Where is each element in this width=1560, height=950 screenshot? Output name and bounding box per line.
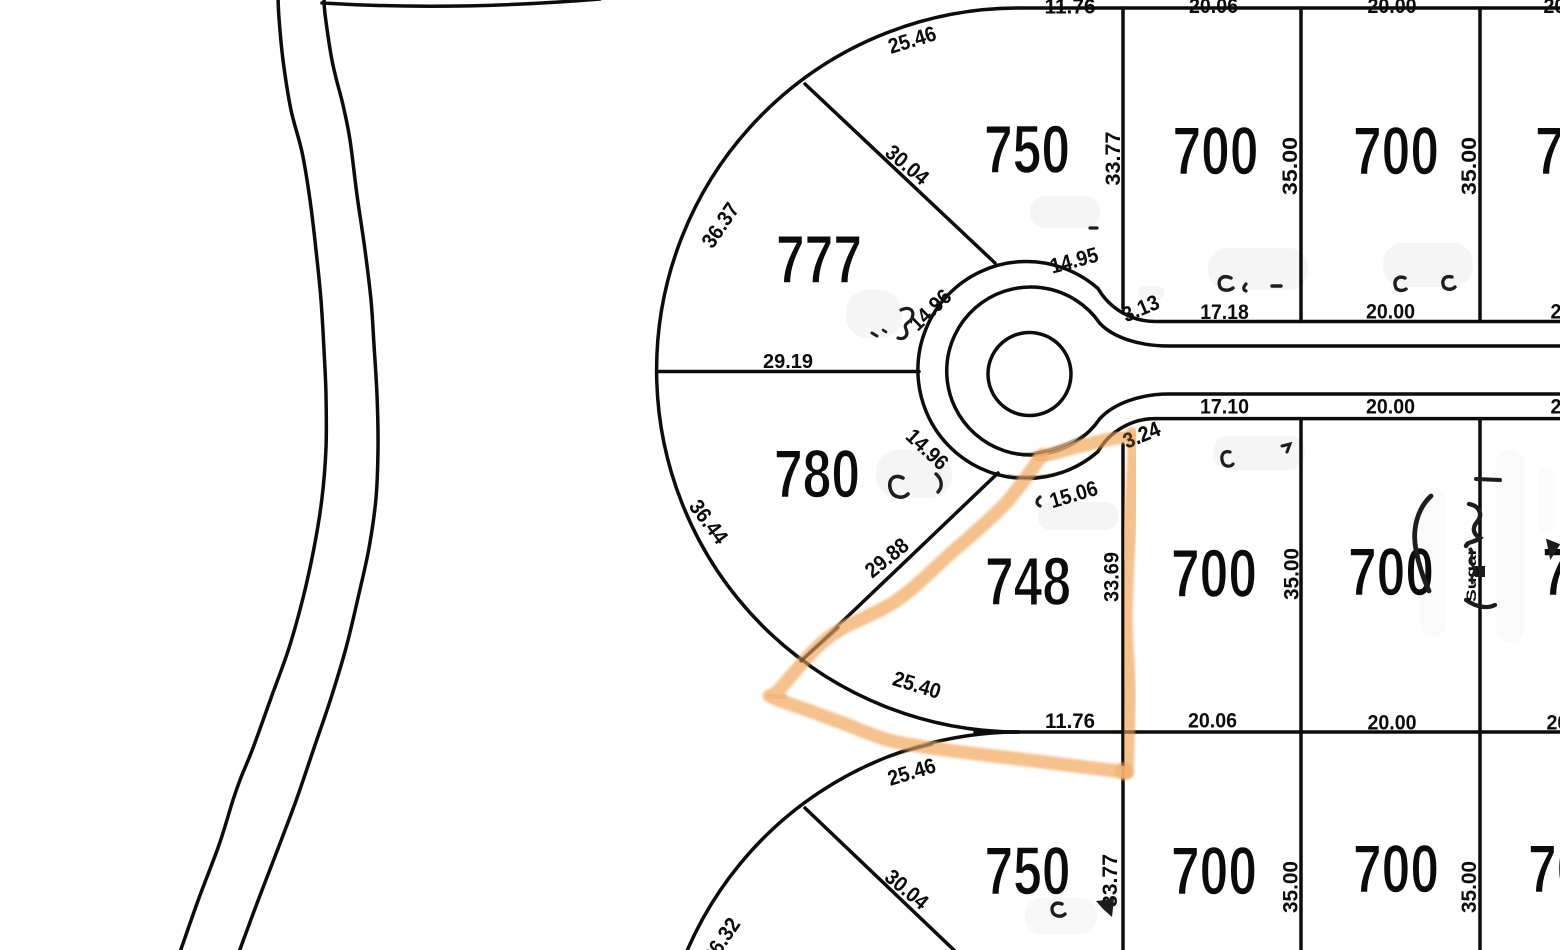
- svg-text:780: 780: [774, 436, 860, 513]
- svg-text:700: 700: [1535, 113, 1560, 190]
- svg-text:700: 700: [1528, 831, 1560, 908]
- svg-text:33.77: 33.77: [1098, 854, 1122, 907]
- svg-text:35.00: 35.00: [1457, 137, 1481, 195]
- svg-text:20.00: 20.00: [1551, 300, 1560, 324]
- svg-text:29.19: 29.19: [763, 351, 813, 373]
- svg-text:700: 700: [1353, 113, 1439, 190]
- svg-text:20.00: 20.00: [1551, 395, 1560, 419]
- svg-text:35.00: 35.00: [1278, 137, 1302, 195]
- svg-text:700: 700: [1353, 831, 1439, 908]
- svg-text:750: 750: [984, 111, 1070, 188]
- svg-text:700: 700: [1171, 833, 1257, 910]
- svg-text:20.06: 20.06: [1188, 709, 1237, 733]
- svg-text:17.10: 17.10: [1200, 395, 1249, 419]
- svg-text:33.77: 33.77: [1101, 131, 1125, 185]
- svg-text:20.06: 20.06: [1189, 0, 1238, 18]
- svg-text:20.00: 20.00: [1366, 395, 1415, 419]
- svg-text:11.76: 11.76: [1045, 0, 1096, 19]
- svg-text:748: 748: [985, 543, 1071, 620]
- svg-text:11.76: 11.76: [1045, 709, 1095, 733]
- svg-text:35.00: 35.00: [1279, 861, 1303, 913]
- svg-text:777: 777: [776, 221, 862, 298]
- svg-text:700: 700: [1173, 113, 1259, 190]
- svg-text:35.00: 35.00: [1457, 861, 1481, 913]
- svg-text:20.00: 20.00: [1368, 0, 1417, 18]
- svg-text:700: 700: [1171, 535, 1257, 612]
- svg-text:20.00: 20.00: [1368, 711, 1417, 735]
- svg-text:20.00: 20.00: [1366, 300, 1415, 324]
- svg-text:750: 750: [985, 833, 1071, 910]
- svg-text:35.00: 35.00: [1280, 548, 1304, 600]
- svg-text:20.00: 20.00: [1547, 711, 1560, 735]
- svg-text:17.18: 17.18: [1200, 300, 1249, 324]
- svg-text:20.00: 20.00: [1544, 0, 1560, 18]
